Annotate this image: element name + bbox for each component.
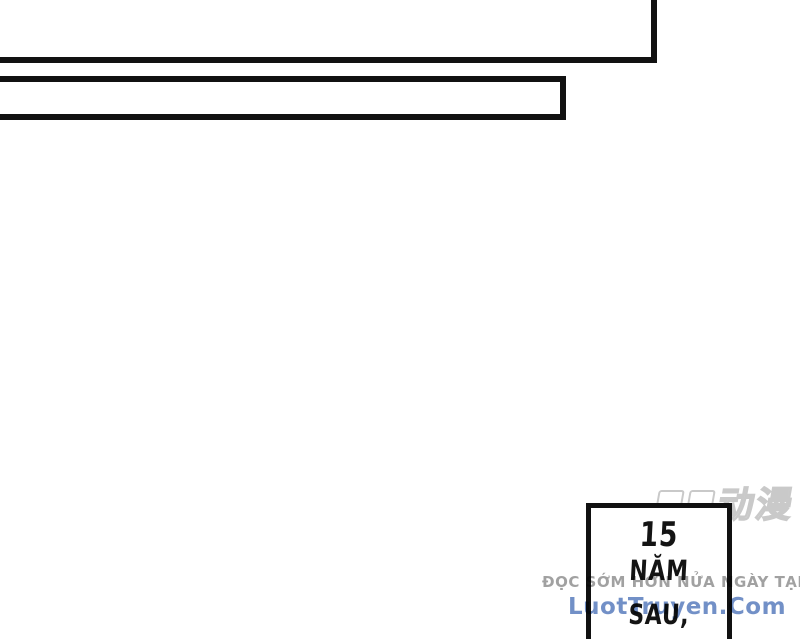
comic-panel-strip [0, 76, 566, 120]
comic-page: { "caption": { "lines": ["15", "NĂM", "S… [0, 0, 800, 639]
comic-page-canvas: 动漫 15 NĂM SAU, ĐỌC SỚM HƠN NỬA NGÀY TẠI … [0, 0, 800, 639]
watermark-promo-text: ĐỌC SỚM HƠN NỬA NGÀY TẠI [542, 573, 800, 591]
watermark-site-name: LuotTruyen.Com [568, 594, 786, 620]
caption-line-years: 15 [605, 518, 713, 552]
comic-panel-top [0, 0, 657, 63]
